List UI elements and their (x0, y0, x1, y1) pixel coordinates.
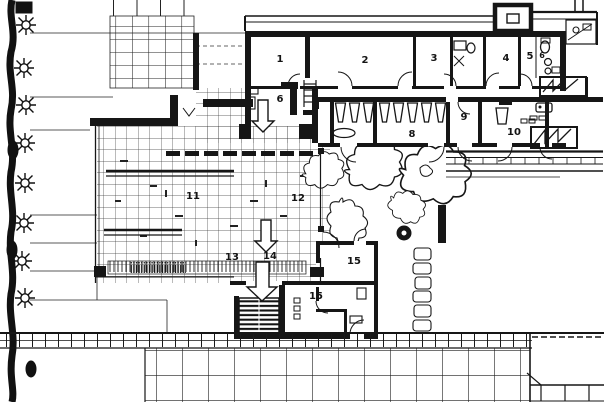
basement-stairwell (239, 296, 279, 334)
seating-row-dense (130, 262, 186, 273)
room-label-2: 2 (362, 55, 369, 66)
room-label-14: 14 (263, 251, 277, 262)
room-label-15-upper: 15 (347, 256, 361, 267)
floor-plan-sheet: 1 2 3 4 5 6 6 8 9 10 11 12 13 14 15 15 (0, 0, 605, 402)
room-label-9: 9 (461, 112, 468, 123)
room-label-15-lower: 15 (309, 291, 323, 302)
room-label-1: 1 (277, 54, 284, 65)
room-label-12: 12 (291, 193, 305, 204)
room-label-3: 3 (431, 53, 438, 64)
room-label-6-top: 6 (539, 51, 545, 60)
paver-band (0, 333, 604, 348)
hearth (310, 267, 324, 277)
wall-stub (438, 205, 446, 243)
room-label-11: 11 (186, 191, 200, 202)
room-label-13: 13 (225, 252, 239, 263)
room-label-6: 6 (277, 94, 284, 105)
room-label-5: 5 (527, 51, 534, 62)
room-label-8: 8 (409, 129, 416, 140)
room-label-10: 10 (507, 127, 521, 138)
floor-plan-drawing: 1 2 3 4 5 6 6 8 9 10 11 12 13 14 15 15 (0, 0, 605, 402)
room-label-4: 4 (503, 53, 510, 64)
